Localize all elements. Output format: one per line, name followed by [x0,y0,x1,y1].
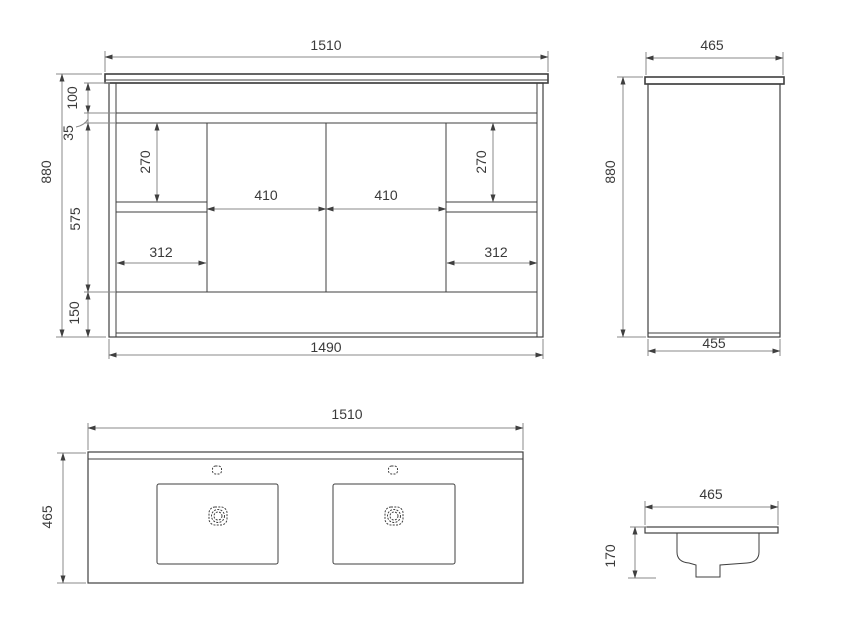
dim-label-carcass-width: 1490 [310,339,341,355]
dim-label-basin-section-depth: 465 [699,486,723,502]
extension-lines-170 [628,527,656,578]
drain-inner-ring-left [214,512,222,520]
dim-label-door-width-right: 410 [374,187,398,203]
dim-label-overall-height-side: 880 [602,160,618,184]
countertop-plan [88,452,523,583]
extension-lines-465-plan [57,453,86,583]
dim-label-countertop-width: 1510 [310,37,341,53]
dim-label-basin-top-width: 1510 [331,406,362,422]
dim-label-upper-drawer-left: 270 [137,150,153,174]
dim-label-overall-height: 880 [38,160,54,184]
dim-label-bowl-height: 170 [602,544,618,568]
faucet-hole-left [213,466,222,474]
vanity-technical-drawing: 1510 880 100 35 575 150 270 270 410 410 … [0,0,847,640]
drain-right [385,507,403,525]
extension-lines-880-side [617,77,646,337]
cabinet-side-view: 465 880 455 [602,37,784,356]
drain-mid-ring-right [388,510,401,523]
basin-outline-left [157,484,278,564]
extension-lines-1510-plan [88,423,523,450]
cabinet-front-view: 1510 880 100 35 575 150 270 270 410 410 … [38,37,548,359]
left-drawer-divider [116,202,207,212]
basin-outline-right [333,484,455,564]
dim-label-upper-drawer-right: 270 [473,150,489,174]
dim-label-drawer-width-left: 312 [149,244,173,260]
faucet-hole-right [389,466,398,474]
dim-label-countertop-depth: 465 [700,37,724,53]
drain-left [209,507,227,525]
extension-lines-chain [84,83,116,292]
cabinet-body-side [648,84,780,337]
extension-lines-1510 [105,51,548,72]
countertop-section [645,527,778,533]
drain-mid-ring-left [212,510,225,523]
dim-label-rail-gap: 35 [60,125,76,141]
dim-label-door-section-height: 575 [67,207,83,231]
extension-lines-465-section [645,501,778,525]
countertop-front [105,74,548,83]
dim-label-door-width-left: 410 [254,187,278,203]
dim-label-basin-top-depth: 465 [39,505,55,529]
basin-section-view: 465 170 [602,486,778,578]
drain-inner-ring-right [390,512,398,520]
dim-label-kick-height: 150 [66,301,82,325]
door-divider-lines [207,123,446,292]
dim-label-top-rail: 100 [64,86,80,110]
extension-lines-465-side [646,52,783,75]
basin-top-view: 1510 465 [39,406,523,583]
basin-bowl-profile [677,534,759,578]
dim-label-drawer-width-right: 312 [484,244,508,260]
dim-label-carcass-depth: 455 [702,335,726,351]
countertop-side [645,77,784,84]
right-drawer-divider [446,202,537,212]
